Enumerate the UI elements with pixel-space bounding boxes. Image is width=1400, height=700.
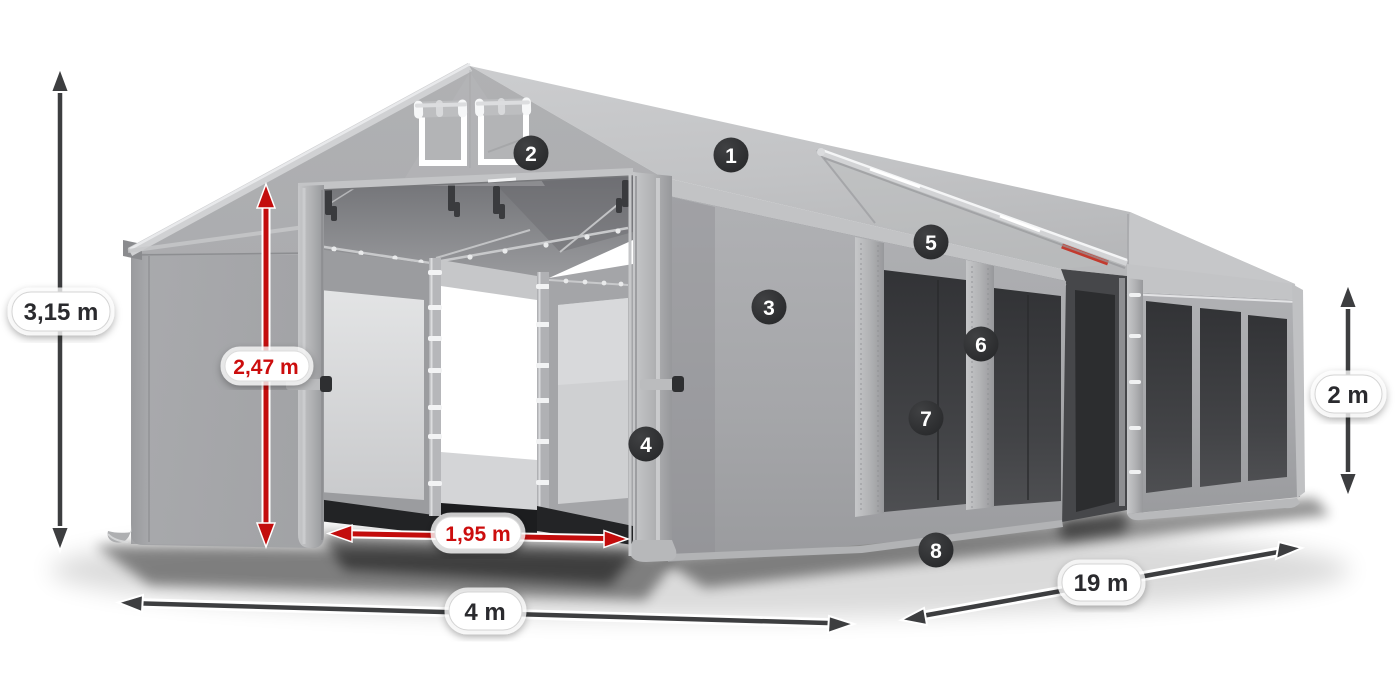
svg-text:6: 6: [975, 334, 987, 357]
svg-text:2,47 m: 2,47 m: [233, 356, 298, 379]
svg-text:4: 4: [640, 434, 652, 457]
svg-text:19 m: 19 m: [1074, 570, 1129, 597]
svg-text:1,95 m: 1,95 m: [445, 523, 510, 546]
svg-text:4 m: 4 m: [464, 599, 505, 626]
svg-text:7: 7: [920, 408, 932, 431]
svg-text:3,15 m: 3,15 m: [24, 299, 99, 326]
svg-text:8: 8: [930, 540, 942, 563]
svg-text:3: 3: [763, 297, 775, 320]
svg-text:2 m: 2 m: [1327, 382, 1368, 409]
svg-text:1: 1: [725, 145, 737, 168]
svg-text:2: 2: [525, 143, 537, 166]
svg-text:5: 5: [925, 232, 937, 255]
